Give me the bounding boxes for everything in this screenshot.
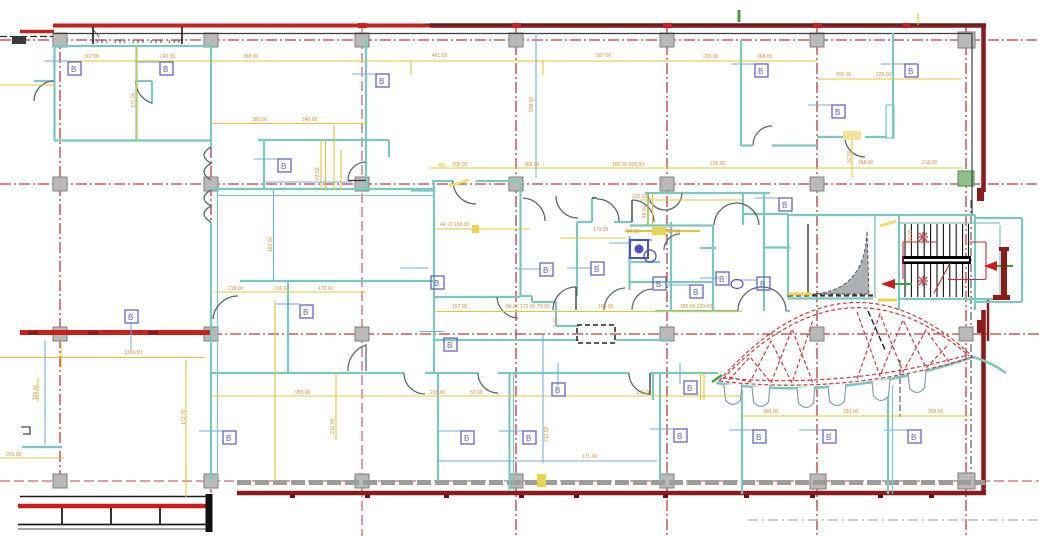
svg-text:B: B — [464, 434, 469, 443]
svg-text:B: B — [756, 433, 761, 442]
svg-text:236.00: 236.00 — [710, 161, 726, 167]
svg-text:307.00: 307.00 — [84, 54, 100, 60]
svg-text:185.00 120.00: 185.00 120.00 — [680, 304, 712, 310]
svg-text:179.00: 179.00 — [593, 227, 609, 233]
svg-text:368.00: 368.00 — [858, 160, 874, 166]
svg-text:B: B — [835, 108, 840, 117]
svg-text:B: B — [303, 308, 308, 317]
svg-text:B: B — [594, 265, 599, 274]
svg-text:B: B — [677, 432, 682, 441]
svg-text:B: B — [447, 341, 452, 350]
svg-text:B: B — [687, 384, 692, 393]
svg-text:177.00: 177.00 — [131, 92, 137, 108]
svg-text:B: B — [693, 288, 698, 297]
svg-text:B: B — [226, 434, 231, 443]
svg-text:B: B — [782, 201, 787, 210]
svg-text:157.00: 157.00 — [452, 304, 468, 310]
svg-text:193.00: 193.00 — [843, 409, 859, 415]
svg-text:450.00: 450.00 — [836, 72, 852, 78]
svg-text:712.50: 712.50 — [544, 426, 550, 442]
svg-text:171.00: 171.00 — [636, 390, 652, 396]
svg-text:210.00: 210.00 — [430, 390, 446, 396]
svg-text:100.00: 100.00 — [33, 384, 39, 400]
svg-text:368.00: 368.00 — [928, 409, 944, 415]
svg-text:212.00: 212.00 — [330, 418, 336, 434]
svg-text:B: B — [71, 65, 76, 74]
svg-text:44.70 158.00: 44.70 158.00 — [440, 222, 469, 228]
svg-text:B: B — [526, 434, 531, 443]
svg-text:225.00: 225.00 — [876, 72, 892, 78]
svg-text:B: B — [281, 162, 286, 171]
svg-text:94.00: 94.00 — [627, 229, 640, 235]
svg-text:B: B — [434, 279, 439, 288]
svg-text:186.00 205.00: 186.00 205.00 — [612, 162, 644, 168]
svg-text:B: B — [760, 280, 765, 289]
svg-text:368.00: 368.00 — [243, 54, 259, 60]
svg-text:205.00: 205.00 — [452, 162, 468, 168]
svg-text:240.00: 240.00 — [302, 117, 318, 123]
svg-text:5.00: 5.00 — [553, 317, 559, 327]
svg-text:368.00: 368.00 — [757, 54, 773, 60]
svg-text:B: B — [128, 313, 133, 322]
svg-text:587.00: 587.00 — [596, 53, 612, 59]
svg-text:218.00: 218.00 — [228, 286, 244, 292]
svg-text:84.00 170.00 79.00: 84.00 170.00 79.00 — [506, 304, 549, 310]
svg-text:B: B — [758, 67, 763, 76]
svg-text:88.00: 88.00 — [668, 229, 681, 235]
svg-text:B: B — [379, 77, 384, 86]
svg-text:172.00: 172.00 — [318, 286, 334, 292]
svg-text:B: B — [543, 266, 548, 275]
svg-text:62.50: 62.50 — [315, 167, 321, 180]
svg-text:52.00: 52.00 — [470, 390, 483, 396]
svg-text:216.67: 216.67 — [274, 286, 290, 292]
svg-text:240.00: 240.00 — [160, 54, 176, 60]
svg-text:368.00: 368.00 — [524, 162, 540, 168]
svg-text:46.00: 46.00 — [642, 205, 648, 218]
svg-text:193.00: 193.00 — [598, 304, 614, 310]
svg-text:368.00: 368.00 — [763, 409, 779, 415]
svg-text:B: B — [719, 275, 724, 284]
svg-text:380.00: 380.00 — [252, 117, 268, 123]
svg-text:B: B — [656, 280, 661, 289]
svg-text:92.50: 92.50 — [847, 150, 853, 163]
svg-text:918.00: 918.00 — [529, 96, 535, 112]
svg-text:30.00: 30.00 — [908, 229, 914, 242]
svg-text:172.70: 172.70 — [181, 409, 187, 425]
svg-text:205.00: 205.00 — [703, 54, 719, 60]
svg-text:481.50: 481.50 — [432, 53, 448, 59]
svg-text:1366.50: 1366.50 — [124, 350, 142, 356]
svg-text:B: B — [911, 433, 916, 442]
svg-text:205.00: 205.00 — [6, 452, 22, 458]
svg-text:B: B — [826, 433, 831, 442]
svg-text:B: B — [163, 65, 168, 74]
svg-text:205.00: 205.00 — [632, 194, 648, 200]
svg-text:163.00: 163.00 — [268, 236, 274, 252]
svg-text:171.00: 171.00 — [582, 454, 598, 460]
svg-text:B: B — [555, 386, 560, 395]
svg-text:B: B — [908, 67, 913, 76]
svg-text:213.00: 213.00 — [922, 160, 938, 166]
svg-text:959.00: 959.00 — [295, 390, 311, 396]
